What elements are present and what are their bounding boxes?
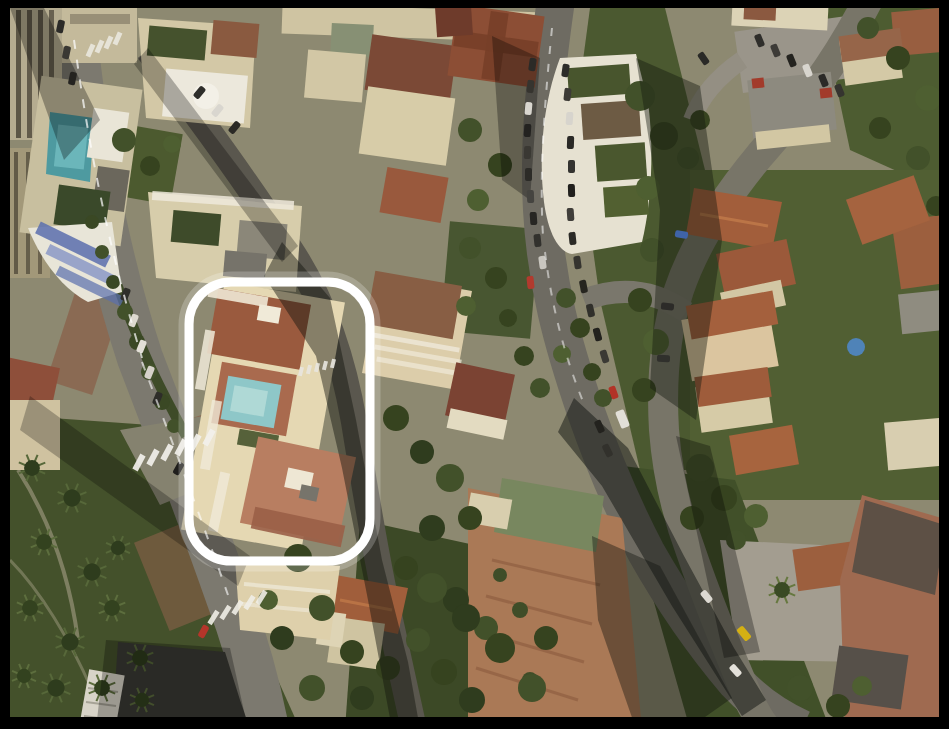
trees-shape: [530, 378, 550, 398]
trees-shape: [467, 189, 489, 211]
trees-shape: [534, 626, 558, 650]
aerial-photo[interactable]: [0, 0, 949, 729]
trees-shape: [299, 675, 325, 701]
trees-shape: [350, 686, 374, 710]
trees-shape: [112, 128, 136, 152]
trees-shape: [419, 515, 445, 541]
buildings-shape: [147, 26, 207, 61]
buildings-shape: [70, 14, 130, 24]
cars-shape: [525, 168, 532, 181]
trees-shape: [431, 659, 457, 685]
trees-shape: [485, 633, 515, 663]
buildings-shape: [595, 142, 647, 181]
buildings-shape: [884, 417, 948, 470]
trees-shape: [106, 275, 120, 289]
trees-shape: [309, 595, 335, 621]
buildings-shape: [359, 86, 456, 166]
trees-shape: [383, 405, 409, 431]
buildings-shape: [304, 50, 366, 103]
cars-shape: [524, 146, 531, 159]
trees-shape: [459, 237, 481, 259]
buildings-shape: [330, 23, 374, 57]
trees-shape: [459, 687, 485, 713]
cars-shape: [526, 80, 534, 94]
cars-shape: [524, 124, 532, 137]
trees-shape: [594, 389, 612, 407]
trees-shape: [410, 440, 434, 464]
cars-shape: [527, 190, 534, 203]
trees-shape: [787, 675, 813, 701]
trees-shape: [458, 118, 482, 142]
cars-shape: [568, 160, 575, 173]
cars-shape: [563, 88, 571, 102]
shadows-shape: [96, 640, 248, 729]
trees-shape: [85, 215, 99, 229]
photo-frame: [0, 0, 949, 729]
trees-shape: [340, 640, 364, 664]
trees-shape: [886, 46, 910, 70]
red-car-west: [526, 276, 534, 290]
trees-shape: [514, 346, 534, 366]
buildings-shape: [567, 64, 631, 98]
trees-shape: [583, 363, 601, 381]
trees-shape: [417, 573, 447, 603]
trees-shape: [452, 604, 480, 632]
water-tank: [847, 338, 865, 356]
trees-shape: [406, 628, 430, 652]
cars-shape: [661, 302, 675, 310]
cars-shape: [530, 212, 538, 225]
buildings-shape: [171, 210, 222, 246]
cars-shape: [568, 184, 575, 197]
trees-shape: [915, 85, 941, 111]
buildings-shape: [752, 77, 765, 88]
trees-shape: [906, 146, 930, 170]
trees-shape: [869, 117, 891, 139]
trees-shape: [499, 309, 517, 327]
cars-shape: [567, 208, 575, 221]
trees-shape: [518, 674, 546, 702]
cars-shape: [524, 102, 532, 116]
trees-shape: [628, 288, 652, 312]
trees-shape: [456, 296, 476, 316]
trees-shape: [744, 504, 768, 528]
buildings-shape: [211, 20, 260, 58]
trees-shape: [857, 17, 879, 39]
trees-shape: [140, 156, 160, 176]
buildings-shape: [14, 152, 18, 274]
trees-shape: [95, 245, 109, 259]
trees-shape: [852, 676, 872, 696]
trees-shape: [458, 506, 482, 530]
cars-shape: [567, 136, 574, 149]
trees-shape: [436, 464, 464, 492]
cars-shape: [533, 234, 541, 248]
buildings-shape: [435, 5, 473, 37]
trees-shape: [163, 135, 181, 153]
cars-shape: [568, 232, 576, 246]
cars-shape: [566, 112, 574, 125]
buildings-shape: [820, 87, 833, 98]
cars-shape: [657, 355, 670, 362]
buildings-shape: [512, 602, 528, 618]
trees-shape: [556, 288, 576, 308]
trees-shape: [570, 318, 590, 338]
buildings-shape: [493, 568, 507, 582]
trees-shape: [485, 267, 507, 289]
trees-shape: [394, 556, 418, 580]
scene: [0, 0, 949, 729]
trees-shape: [826, 694, 850, 718]
trees-shape: [270, 626, 294, 650]
